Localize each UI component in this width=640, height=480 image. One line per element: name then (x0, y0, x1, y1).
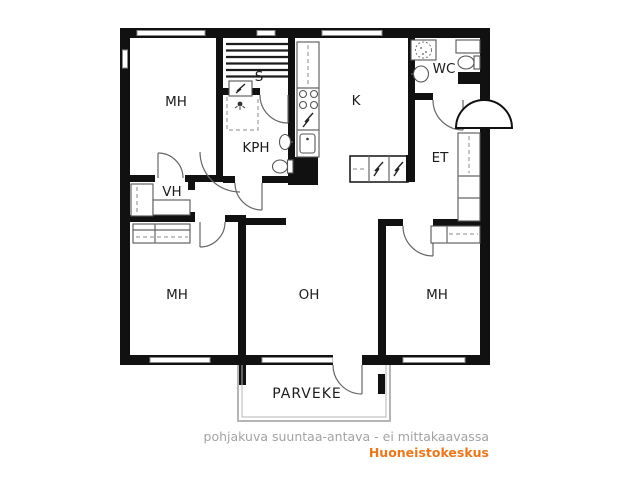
window-sauna-top (257, 31, 275, 36)
door-arc-bedroom3 (403, 226, 433, 256)
window-bedroom1-left (123, 50, 128, 68)
footer-disclaimer: pohjakuva suuntaa-antava - ei mittakaava… (204, 429, 489, 444)
wc-toilet-icon (458, 56, 480, 69)
room-label-balcony: PARVEKE (272, 386, 342, 402)
room-label-living: OH (299, 287, 320, 303)
wall-living-top (246, 218, 286, 225)
room-label-bathroom: KPH (242, 140, 269, 156)
window-bedroom3-bottom (403, 358, 465, 363)
room-label-bedroom2: MH (166, 287, 188, 303)
floor-plan-page: MH S KPH K WC ET VH MH OH MH PARVEKE poh… (0, 0, 640, 480)
door-arc-bedroom2 (200, 222, 225, 247)
window-kitchen-top (322, 31, 382, 36)
footer: pohjakuva suuntaa-antava - ei mittakaava… (204, 429, 489, 460)
fridge-freezer-cabinet (350, 155, 415, 182)
door-arc-sauna (260, 95, 288, 123)
kitchen-counter (297, 42, 319, 157)
door-arc-bathroom (235, 183, 262, 210)
opening-balcony-door (333, 355, 362, 365)
floor-plan-drawing: MH S KPH K WC ET VH MH OH MH PARVEKE poh… (0, 0, 640, 480)
bathroom-toilet-icon (273, 160, 294, 173)
wall-bathroom-bottom-a (223, 176, 235, 183)
wall-bedroom1-bottom-b (185, 175, 223, 182)
room-label-wc: WC (433, 61, 456, 77)
room-label-sauna: S (255, 69, 264, 85)
kitchen-sink-icon (300, 134, 315, 153)
wall-closet-right-a (188, 182, 195, 190)
room-label-closet: VH (162, 184, 181, 200)
window-bedroom1-top (137, 31, 205, 36)
wc-cabinet (456, 40, 480, 53)
wall-living-bedroom3 (378, 219, 386, 365)
room-label-bedroom1: MH (165, 94, 187, 110)
room-label-entry: ET (432, 150, 450, 166)
wall-bedroom2-living (238, 215, 246, 385)
sauna-stove-icon (229, 81, 252, 96)
bedroom2-wardrobe (133, 224, 190, 243)
door-arc-bedroom1 (158, 153, 183, 178)
wall-left (120, 28, 130, 365)
bedroom3-wardrobe (431, 226, 480, 243)
wall-bedroom1-right (216, 38, 223, 182)
window-living-bottom (262, 358, 333, 363)
wall-wc-bottom (408, 93, 433, 100)
room-label-kitchen: K (352, 93, 362, 109)
shower-area-dashed (227, 97, 258, 130)
wall-bedroom3-top-a (378, 219, 403, 226)
wall-balcony-right-tick (378, 374, 385, 394)
footer-brand-huoneistokeskus: Huoneistokeskus (369, 445, 489, 460)
wall-wc-toilet-nub (458, 72, 480, 84)
shower-head-icon (235, 102, 245, 110)
wc-shower-cabin-icon (411, 40, 436, 60)
room-label-bedroom3: MH (426, 287, 448, 303)
window-bedroom2-bottom (150, 358, 210, 363)
wall-bedroom1-bottom-a (130, 175, 155, 182)
wall-right (480, 28, 490, 365)
entrance-door-canopy (456, 100, 512, 128)
entry-wardrobe (458, 133, 480, 221)
